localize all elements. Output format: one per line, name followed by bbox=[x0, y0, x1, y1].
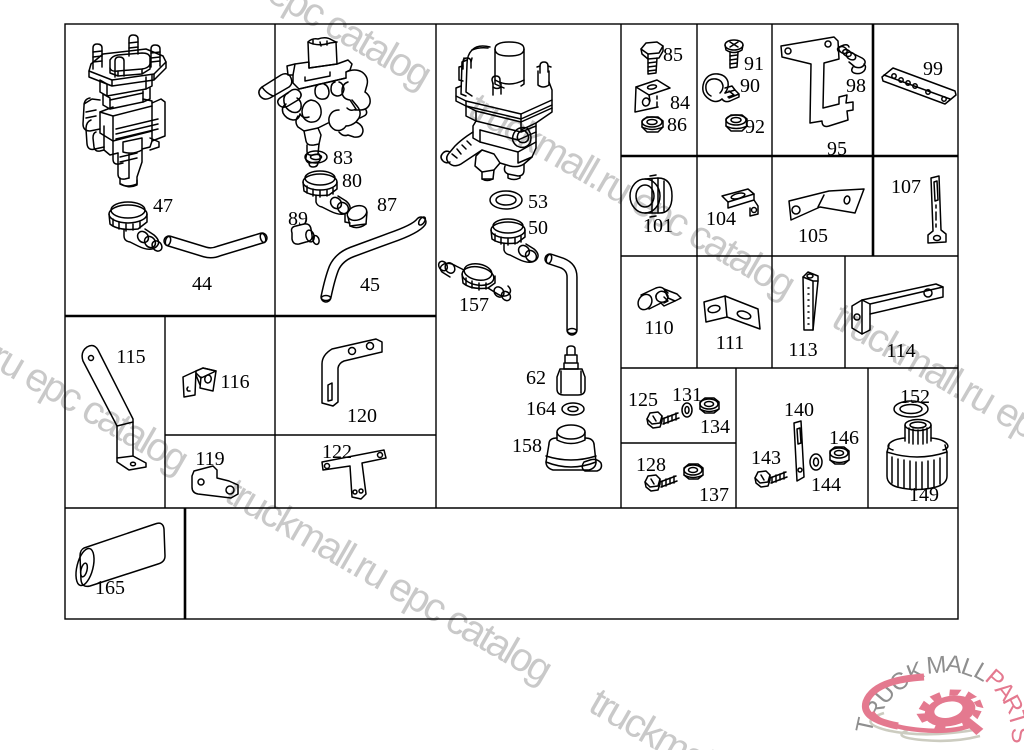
svg-text:83: 83 bbox=[333, 147, 353, 169]
svg-text:107: 107 bbox=[891, 176, 921, 198]
svg-text:158: 158 bbox=[512, 435, 542, 457]
svg-text:90: 90 bbox=[740, 75, 760, 97]
svg-text:140: 140 bbox=[784, 399, 814, 421]
svg-text:125: 125 bbox=[628, 389, 658, 411]
svg-text:91: 91 bbox=[744, 53, 764, 75]
svg-text:53: 53 bbox=[528, 191, 548, 213]
svg-text:S: S bbox=[1005, 726, 1024, 744]
svg-text:62: 62 bbox=[526, 367, 546, 389]
svg-text:144: 144 bbox=[811, 474, 841, 496]
svg-text:131: 131 bbox=[672, 384, 702, 406]
svg-text:84: 84 bbox=[670, 92, 690, 114]
svg-text:143: 143 bbox=[751, 447, 781, 469]
svg-text:113: 113 bbox=[788, 339, 817, 361]
svg-text:50: 50 bbox=[528, 217, 548, 239]
svg-text:45: 45 bbox=[360, 274, 380, 296]
svg-text:92: 92 bbox=[745, 116, 765, 138]
svg-text:111: 111 bbox=[716, 332, 745, 354]
svg-text:137: 137 bbox=[699, 484, 729, 506]
svg-text:114: 114 bbox=[886, 340, 915, 362]
svg-text:152: 152 bbox=[900, 386, 930, 408]
svg-text:101: 101 bbox=[643, 215, 673, 237]
svg-text:164: 164 bbox=[526, 398, 556, 420]
svg-text:122: 122 bbox=[322, 441, 352, 463]
svg-text:104: 104 bbox=[706, 208, 736, 230]
svg-text:87: 87 bbox=[377, 194, 397, 216]
svg-text:98: 98 bbox=[846, 75, 866, 97]
svg-text:86: 86 bbox=[667, 114, 687, 136]
svg-text:95: 95 bbox=[827, 138, 847, 160]
svg-text:85: 85 bbox=[663, 44, 683, 66]
svg-text:44: 44 bbox=[192, 273, 212, 295]
svg-text:157: 157 bbox=[459, 294, 489, 316]
svg-text:165: 165 bbox=[95, 577, 125, 599]
svg-text:110: 110 bbox=[644, 317, 673, 339]
svg-text:120: 120 bbox=[347, 405, 377, 427]
svg-text:146: 146 bbox=[829, 427, 859, 449]
svg-text:149: 149 bbox=[909, 484, 939, 506]
svg-text:134: 134 bbox=[700, 416, 730, 438]
svg-text:119: 119 bbox=[195, 448, 224, 470]
svg-text:47: 47 bbox=[153, 195, 173, 217]
svg-text:99: 99 bbox=[923, 58, 943, 80]
svg-text:128: 128 bbox=[636, 454, 666, 476]
svg-text:89: 89 bbox=[288, 208, 308, 230]
svg-text:105: 105 bbox=[798, 225, 828, 247]
svg-text:80: 80 bbox=[342, 170, 362, 192]
svg-text:115: 115 bbox=[116, 346, 145, 368]
svg-text:116: 116 bbox=[220, 371, 249, 393]
